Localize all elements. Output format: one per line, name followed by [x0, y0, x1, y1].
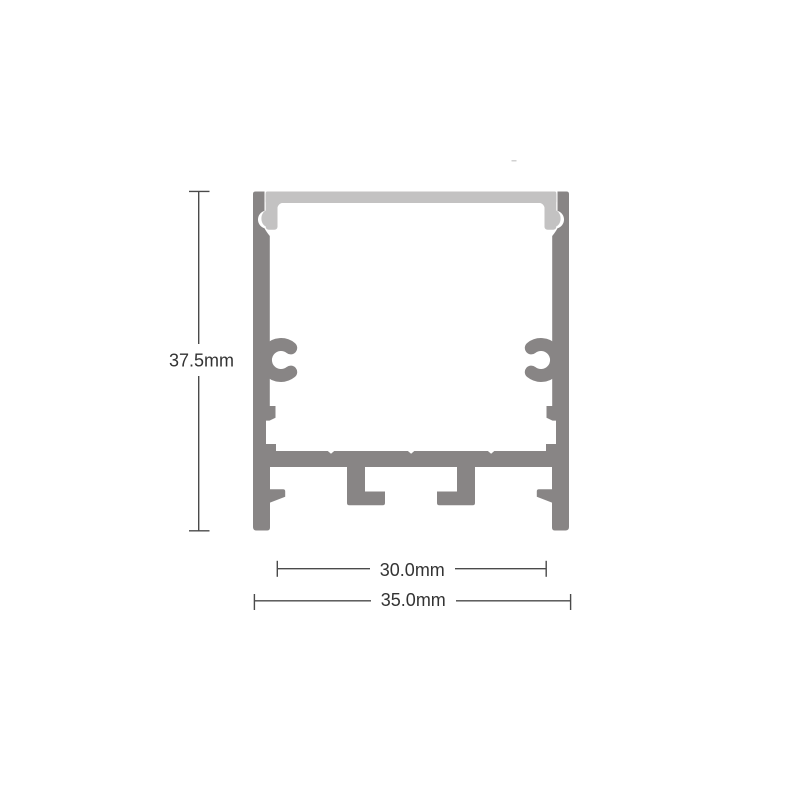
svg-text:30.0mm: 30.0mm: [380, 560, 445, 580]
svg-text:35.0mm: 35.0mm: [381, 590, 446, 610]
svg-text:37.5mm: 37.5mm: [169, 350, 234, 370]
